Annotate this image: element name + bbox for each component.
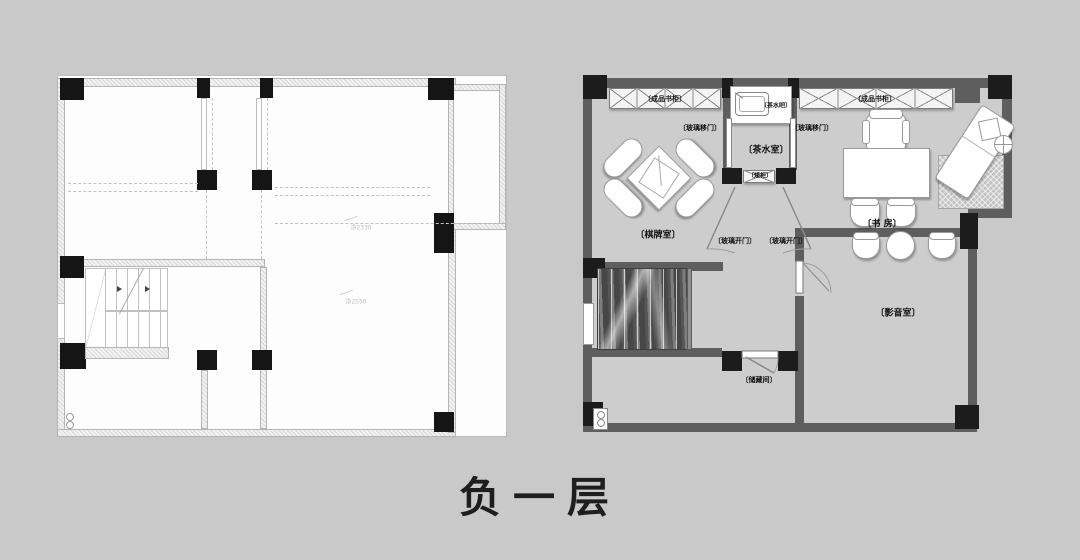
stair-direction-arrow (145, 286, 150, 292)
column (988, 75, 1012, 99)
wall (57, 429, 456, 437)
equipment-box (593, 408, 608, 430)
stair-railing (687, 268, 692, 350)
office-chair-arm (862, 120, 870, 144)
stool-icon (928, 235, 956, 259)
equipment-icon (66, 421, 74, 429)
bookcase-cell (693, 88, 721, 109)
label-tea-room: 〔茶水室〕 (743, 143, 788, 156)
beam-line (275, 223, 499, 224)
interior-wall (260, 267, 267, 429)
wall (60, 78, 456, 87)
label-study: 〔书 房〕 (862, 217, 901, 230)
label-glass-door-left: 〔玻璃开门〕 (714, 236, 756, 246)
wall (453, 223, 506, 230)
stair-landing (85, 268, 106, 351)
label-sliding-door-right: 〔玻璃移门〕 (791, 123, 833, 133)
stairwell-wall (65, 259, 265, 267)
structural-plan: 净2330 净2550 (57, 75, 507, 437)
wall (583, 78, 592, 432)
sliding-door-leaf (726, 118, 732, 168)
column (60, 78, 84, 100)
window (57, 303, 65, 339)
annotation-leader (344, 216, 358, 221)
beam-line (261, 190, 262, 259)
column (60, 343, 86, 369)
bookcase-cell (609, 88, 637, 109)
column (434, 213, 454, 253)
column (197, 78, 210, 98)
column (252, 350, 272, 370)
office-chair-icon (866, 113, 906, 153)
round-stool-icon (886, 231, 915, 260)
wall (583, 423, 977, 432)
beam-line (212, 98, 213, 170)
beam-line (206, 190, 207, 259)
column (60, 256, 84, 278)
beam-line (275, 195, 430, 196)
label-tea-bar: 〔茶水吧〕 (761, 101, 791, 110)
label-chess-room: 〔棋牌室〕 (635, 228, 680, 241)
floor-title: 负一层 (0, 464, 1080, 525)
partition-wall (201, 98, 207, 170)
column (583, 75, 607, 99)
beam-annotation: 净2330 (350, 223, 371, 232)
furnished-plan: 〔成品书柜〕 〔茶水吧〕 〔成品书柜〕 〔玻璃移门〕 〔玻璃移门〕 〔茶水室〕 … (583, 75, 1013, 437)
beam-line (267, 98, 268, 170)
media-door-swing (795, 261, 835, 301)
floorplan-image: 净2330 净2550 (0, 0, 1080, 560)
column (434, 412, 454, 432)
bookcase-cell (915, 88, 954, 109)
bookcase-cell (799, 88, 838, 109)
wall (499, 84, 506, 230)
label-storage-room: 〔储藏间〕 (742, 375, 777, 385)
wall (448, 229, 456, 433)
column (252, 170, 272, 190)
side-table-icon (994, 135, 1013, 154)
card-table-group (610, 129, 706, 225)
column (776, 168, 796, 184)
stair-base-slab (85, 347, 169, 359)
wall (448, 87, 454, 229)
column (960, 213, 978, 249)
stair-flight-lower (105, 311, 168, 351)
stairs-marble (597, 268, 689, 350)
label-bookcase-left: 〔成品书柜〕 (644, 94, 686, 104)
label-glass-door-right: 〔玻璃开门〕 (765, 236, 807, 246)
office-chair-back (869, 109, 903, 119)
column (722, 168, 742, 184)
label-low-cabinet: 〔矮柜〕 (748, 171, 772, 180)
annotation-leader (339, 290, 353, 295)
beam-annotation: 净2550 (345, 297, 366, 306)
label-media-room: 〔影音室〕 (875, 306, 920, 319)
label-sliding-door-left: 〔玻璃移门〕 (679, 123, 721, 133)
column (197, 170, 217, 190)
column (722, 351, 742, 371)
equipment-circle (597, 411, 605, 419)
beam-line (68, 191, 198, 192)
column (955, 405, 979, 429)
equipment-circle (597, 419, 605, 427)
stair-window (583, 303, 594, 345)
wall-stub (955, 88, 980, 103)
beam-line (275, 187, 430, 188)
stool-icon (852, 235, 880, 259)
column (428, 78, 454, 100)
interior-wall (201, 370, 208, 429)
glass-door-swing-right (779, 183, 823, 259)
column (197, 350, 217, 370)
beam-line (68, 183, 198, 184)
partition-wall (256, 98, 262, 170)
stair-flight-upper (105, 268, 168, 311)
office-chair-arm (902, 120, 910, 144)
desk-icon (843, 148, 930, 198)
column (260, 78, 273, 98)
stair-direction-arrow (117, 286, 122, 292)
label-bookcase-right: 〔成品书柜〕 (854, 94, 896, 104)
equipment-icon (66, 413, 74, 421)
